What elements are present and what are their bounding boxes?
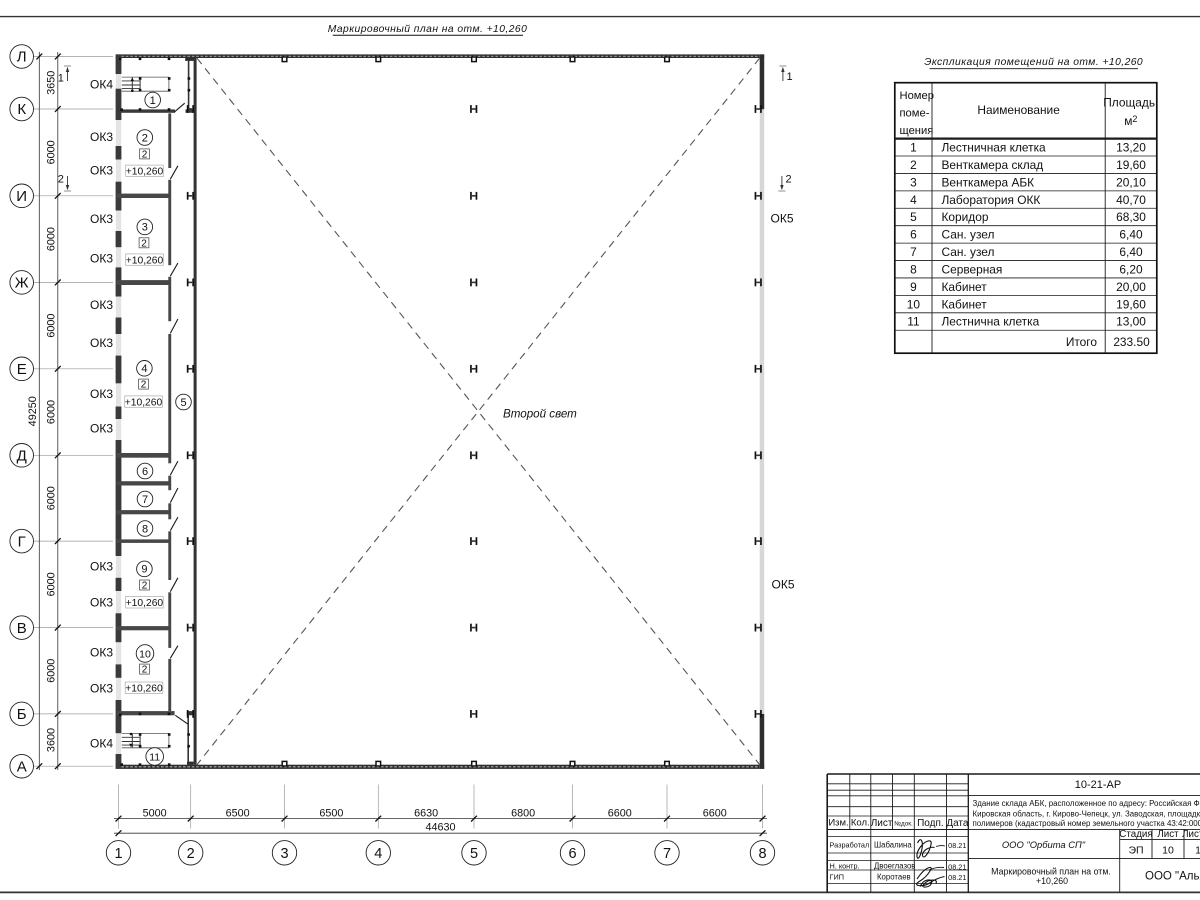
svg-text:Маркировочный план на отм. +10: Маркировочный план на отм. +10,260 — [328, 24, 528, 35]
svg-text:Коротаев: Коротаев — [877, 872, 911, 881]
svg-text:9: 9 — [910, 280, 917, 294]
svg-text:Номер: Номер — [900, 90, 934, 102]
svg-text:4: 4 — [141, 363, 147, 375]
svg-text:6: 6 — [568, 846, 576, 862]
svg-text:2: 2 — [142, 581, 148, 592]
svg-text:6000: 6000 — [46, 572, 58, 596]
svg-text:В: В — [17, 620, 27, 637]
svg-text:ОК3: ОК3 — [90, 336, 113, 350]
svg-text:ОК4: ОК4 — [90, 737, 113, 751]
svg-text:№док.: №док. — [894, 821, 913, 828]
svg-text:Стадия: Стадия — [1119, 829, 1152, 840]
svg-text:Итого: Итого — [1066, 335, 1098, 349]
svg-text:+10,260: +10,260 — [125, 397, 163, 408]
svg-text:Д: Д — [17, 448, 27, 465]
svg-text:11: 11 — [149, 751, 160, 763]
svg-text:Второй свет: Второй свет — [503, 407, 577, 420]
svg-text:Ж: Ж — [15, 275, 29, 292]
svg-text:Венткамера склад: Венткамера склад — [942, 158, 1044, 172]
svg-text:Шабалина: Шабалина — [874, 840, 912, 849]
svg-text:2: 2 — [142, 665, 148, 676]
svg-text:Экспликация помещений на отм.: Экспликация помещений на отм. +10,260 — [924, 57, 1143, 68]
svg-text:13,00: 13,00 — [1116, 315, 1146, 329]
svg-text:3: 3 — [280, 846, 288, 862]
svg-text:3650: 3650 — [46, 71, 58, 95]
svg-text:ОК3: ОК3 — [90, 130, 113, 144]
svg-text:1: 1 — [910, 141, 917, 155]
svg-text:6000: 6000 — [46, 486, 58, 510]
svg-text:1: 1 — [787, 71, 793, 83]
svg-text:И: И — [16, 188, 27, 205]
svg-text:2: 2 — [141, 380, 147, 391]
svg-text:щения: щения — [900, 125, 934, 137]
svg-text:Лаборатория ОКК: Лаборатория ОКК — [942, 193, 1041, 207]
svg-text:2: 2 — [786, 174, 792, 186]
svg-text:6: 6 — [910, 228, 917, 242]
svg-text:Л: Л — [17, 49, 27, 66]
svg-text:ОК3: ОК3 — [90, 560, 113, 574]
svg-text:ООО "Альянспроект": ООО "Альянспроект" — [1145, 870, 1200, 882]
svg-text:К: К — [17, 101, 26, 118]
svg-text:+10,260: +10,260 — [1036, 876, 1068, 886]
svg-text:ОК3: ОК3 — [90, 298, 113, 312]
svg-text:ОК3: ОК3 — [90, 212, 113, 226]
svg-text:5000: 5000 — [143, 807, 167, 819]
svg-text:ОК3: ОК3 — [90, 422, 113, 436]
svg-text:6500: 6500 — [319, 807, 343, 819]
svg-text:19,60: 19,60 — [1116, 158, 1146, 172]
svg-text:Сан. узел: Сан. узел — [942, 228, 995, 242]
svg-text:10: 10 — [1162, 845, 1174, 857]
svg-text:Разработал: Разработал — [830, 840, 870, 849]
svg-text:8: 8 — [910, 262, 917, 276]
svg-text:7: 7 — [663, 846, 671, 862]
svg-text:1: 1 — [58, 73, 64, 85]
svg-text:ОК5: ОК5 — [771, 211, 794, 225]
svg-text:6000: 6000 — [46, 400, 58, 424]
svg-text:8: 8 — [758, 846, 766, 862]
svg-text:10: 10 — [139, 648, 151, 660]
svg-text:2: 2 — [187, 846, 195, 862]
svg-text:6500: 6500 — [226, 807, 250, 819]
svg-text:2: 2 — [142, 150, 148, 161]
svg-text:Здание склада АБК, расположенн: Здание склада АБК, расположенное по адре… — [973, 799, 1200, 808]
svg-text:Наименование: Наименование — [977, 103, 1060, 117]
svg-text:Лестнична клетка: Лестнична клетка — [942, 315, 1040, 329]
svg-text:6: 6 — [142, 466, 148, 478]
svg-text:ОК3: ОК3 — [90, 682, 113, 696]
svg-text:68,30: 68,30 — [1116, 210, 1146, 224]
svg-text:20,10: 20,10 — [1116, 175, 1146, 189]
svg-text:полимеров (кадастровый номер з: полимеров (кадастровый номер земельного … — [973, 819, 1200, 828]
svg-text:Кол.: Кол. — [851, 818, 870, 829]
svg-text:4: 4 — [910, 193, 917, 207]
svg-text:Сан. узел: Сан. узел — [942, 245, 995, 259]
svg-text:Лист: Лист — [871, 818, 893, 829]
svg-text:ООО "Орбита СП": ООО "Орбита СП" — [1002, 839, 1086, 850]
svg-text:13,20: 13,20 — [1116, 141, 1146, 155]
svg-text:Серверная: Серверная — [942, 262, 1003, 276]
svg-text:Н. контр.: Н. контр. — [830, 861, 860, 870]
svg-text:6000: 6000 — [46, 659, 58, 683]
svg-text:Лист: Лист — [1157, 829, 1179, 840]
svg-text:08.21: 08.21 — [948, 841, 966, 850]
svg-text:40,70: 40,70 — [1116, 193, 1146, 207]
svg-text:8: 8 — [142, 523, 148, 535]
svg-text:А: А — [17, 758, 27, 775]
svg-text:Дата: Дата — [946, 818, 969, 829]
svg-text:5: 5 — [910, 210, 917, 224]
svg-text:7: 7 — [910, 245, 917, 259]
svg-text:19,60: 19,60 — [1116, 297, 1146, 311]
svg-text:44630: 44630 — [425, 822, 455, 834]
svg-text:6,40: 6,40 — [1119, 245, 1143, 259]
svg-text:1: 1 — [114, 846, 122, 862]
svg-text:ОК4: ОК4 — [90, 77, 113, 91]
svg-text:5: 5 — [180, 397, 186, 409]
svg-text:4: 4 — [374, 846, 382, 862]
svg-text:ОК3: ОК3 — [90, 646, 113, 660]
svg-text:6600: 6600 — [608, 807, 632, 819]
svg-text:6000: 6000 — [46, 227, 58, 251]
svg-text:6000: 6000 — [46, 314, 58, 338]
svg-text:+10,260: +10,260 — [126, 255, 164, 266]
svg-text:ОК5: ОК5 — [772, 577, 795, 591]
svg-text:2: 2 — [142, 132, 148, 144]
svg-text:2: 2 — [910, 158, 917, 172]
svg-text:1: 1 — [150, 95, 156, 107]
svg-text:Г: Г — [18, 533, 26, 550]
svg-text:Двоеглазов: Двоеглазов — [874, 861, 915, 870]
svg-text:Кабинет: Кабинет — [942, 280, 988, 294]
svg-text:Изм.: Изм. — [828, 818, 848, 829]
svg-text:Кабинет: Кабинет — [942, 297, 988, 311]
svg-text:3: 3 — [142, 222, 148, 234]
svg-text:поме-: поме- — [900, 108, 930, 120]
svg-text:6,20: 6,20 — [1119, 262, 1143, 276]
svg-text:+10,260: +10,260 — [126, 598, 164, 609]
svg-text:+10,260: +10,260 — [125, 683, 163, 694]
svg-text:ЭП: ЭП — [1128, 845, 1143, 857]
svg-text:ОК3: ОК3 — [90, 387, 113, 401]
svg-text:233.50: 233.50 — [1113, 335, 1150, 349]
svg-text:10: 10 — [907, 297, 921, 311]
svg-text:Венткамера АБК: Венткамера АБК — [942, 175, 1035, 189]
svg-text:ОК3: ОК3 — [90, 596, 113, 610]
svg-text:Листов: Листов — [1182, 829, 1200, 840]
svg-text:Е: Е — [17, 361, 27, 378]
svg-text:11: 11 — [907, 315, 920, 329]
svg-text:+10,260: +10,260 — [126, 167, 164, 178]
svg-text:6,40: 6,40 — [1119, 228, 1143, 242]
svg-text:2: 2 — [141, 238, 147, 249]
svg-text:6630: 6630 — [414, 807, 438, 819]
svg-text:3: 3 — [910, 175, 917, 189]
svg-text:08.21: 08.21 — [948, 862, 966, 871]
svg-text:9: 9 — [141, 564, 147, 576]
svg-text:7: 7 — [142, 494, 148, 506]
svg-text:Коридор: Коридор — [942, 210, 989, 224]
svg-text:6000: 6000 — [46, 140, 58, 164]
svg-text:Площадь,: Площадь, — [1103, 96, 1158, 110]
svg-text:6600: 6600 — [703, 807, 727, 819]
svg-text:ГИП: ГИП — [830, 872, 844, 881]
svg-text:ОК3: ОК3 — [90, 164, 113, 178]
svg-text:ОК3: ОК3 — [90, 252, 113, 266]
svg-text:Подп.: Подп. — [917, 818, 944, 829]
svg-text:Лестничная клетка: Лестничная клетка — [942, 141, 1047, 155]
svg-text:08.21: 08.21 — [948, 873, 966, 882]
svg-text:5: 5 — [470, 846, 478, 862]
svg-text:Маркировочный план на отм.: Маркировочный план на отм. — [991, 867, 1111, 877]
svg-text:49250: 49250 — [27, 396, 39, 426]
svg-text:20,00: 20,00 — [1116, 280, 1146, 294]
svg-text:6800: 6800 — [511, 807, 535, 819]
svg-text:3600: 3600 — [46, 728, 58, 752]
svg-text:Б: Б — [17, 706, 27, 723]
svg-text:1: 1 — [1195, 845, 1200, 857]
svg-text:10-21-АР: 10-21-АР — [1075, 779, 1121, 791]
svg-text:Кировская область, г. Кирово-Ч: Кировская область, г. Кирово-Чепецк, ул.… — [973, 810, 1200, 819]
svg-text:2: 2 — [58, 174, 64, 186]
